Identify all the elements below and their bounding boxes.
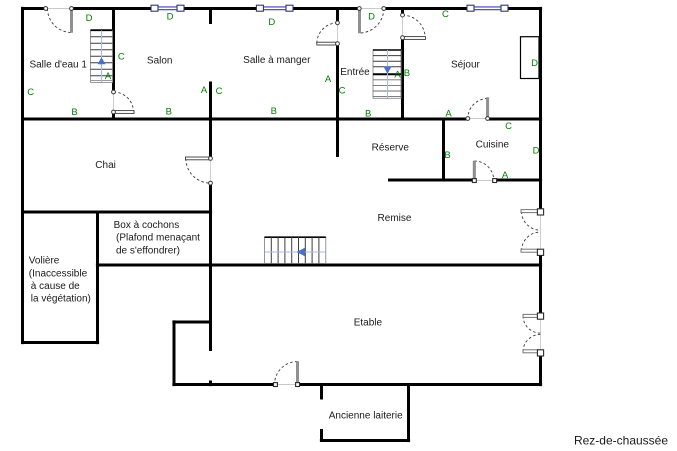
svg-text:A: A (502, 170, 509, 181)
svg-text:la végétation): la végétation) (31, 293, 91, 304)
svg-text:Volière: Volière (29, 255, 60, 266)
svg-text:C: C (27, 87, 34, 98)
svg-text:Box à cochons: Box à cochons (114, 220, 180, 231)
svg-text:(Plafond menaçant: (Plafond menaçant (116, 233, 200, 244)
svg-text:C: C (505, 121, 512, 132)
svg-text:de s'effondrer): de s'effondrer) (116, 245, 180, 256)
svg-text:D: D (531, 58, 538, 69)
svg-text:A: A (325, 74, 332, 85)
svg-text:B: B (444, 150, 450, 161)
svg-text:D: D (533, 146, 540, 157)
svg-text:Entrée: Entrée (340, 67, 370, 78)
svg-text:Salle à manger: Salle à manger (243, 55, 311, 66)
svg-text:A: A (201, 85, 208, 96)
svg-text:Etable: Etable (354, 317, 383, 328)
svg-text:B: B (166, 107, 172, 118)
svg-text:D: D (268, 17, 275, 28)
svg-text:C: C (339, 86, 346, 97)
svg-text:A: A (105, 71, 112, 82)
svg-text:D: D (86, 13, 93, 24)
svg-text:Réserve: Réserve (372, 143, 410, 154)
svg-text:Cuisine: Cuisine (476, 140, 510, 151)
svg-text:A: A (394, 70, 401, 81)
svg-text:C: C (118, 51, 125, 62)
svg-text:B: B (404, 68, 410, 79)
svg-text:Salle d'eau 1: Salle d'eau 1 (29, 60, 87, 71)
svg-text:D: D (368, 12, 375, 23)
svg-text:B: B (71, 107, 77, 118)
svg-text:C: C (216, 86, 223, 97)
svg-text:Salon: Salon (147, 56, 173, 67)
svg-text:à cause de: à cause de (31, 281, 80, 292)
svg-text:Chai: Chai (95, 160, 116, 171)
svg-text:Rez-de-chaussée: Rez-de-chaussée (574, 433, 668, 447)
svg-text:D: D (167, 12, 174, 23)
svg-text:B: B (365, 109, 371, 120)
svg-text:Séjour: Séjour (451, 59, 481, 70)
svg-text:Ancienne laiterie: Ancienne laiterie (329, 410, 403, 421)
svg-text:C: C (442, 9, 449, 20)
svg-text:(Inaccessible: (Inaccessible (29, 268, 88, 279)
svg-text:A: A (445, 109, 452, 120)
svg-text:Remise: Remise (378, 213, 412, 224)
svg-text:B: B (271, 106, 277, 117)
